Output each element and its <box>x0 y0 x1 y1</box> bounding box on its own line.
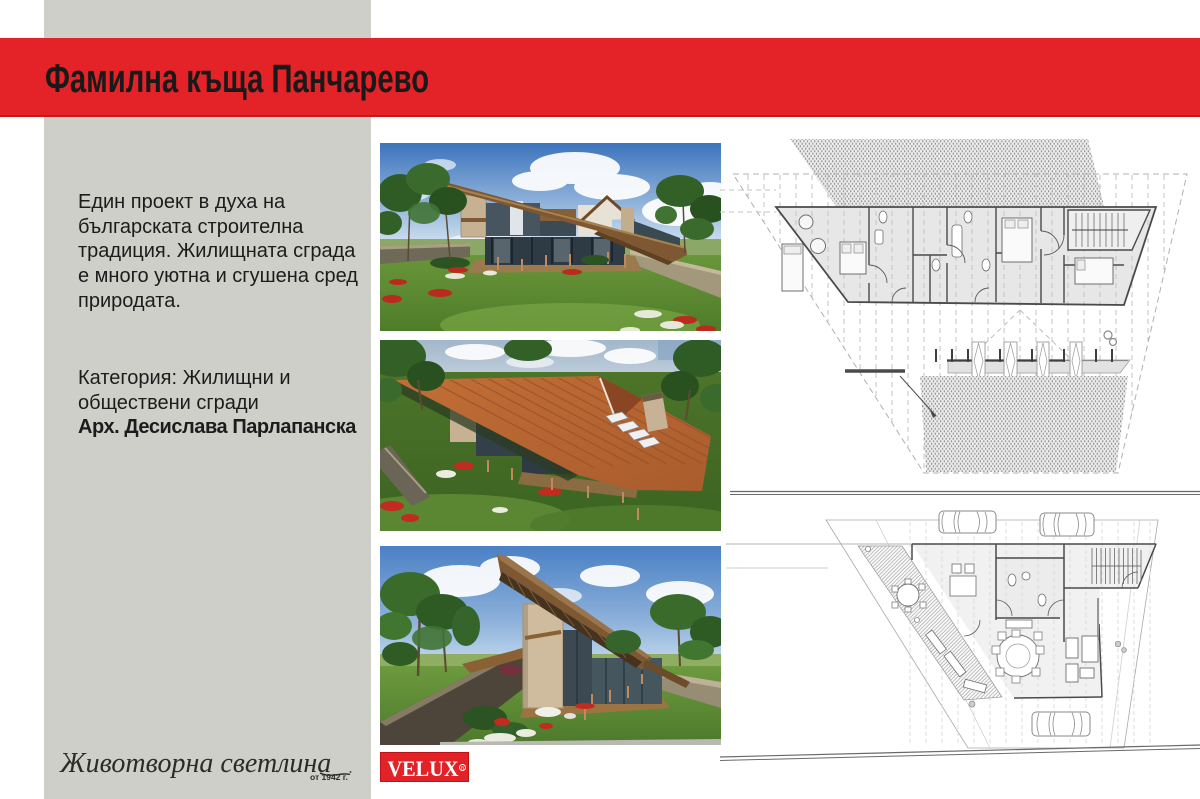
svg-text:VELUX: VELUX <box>388 756 459 781</box>
